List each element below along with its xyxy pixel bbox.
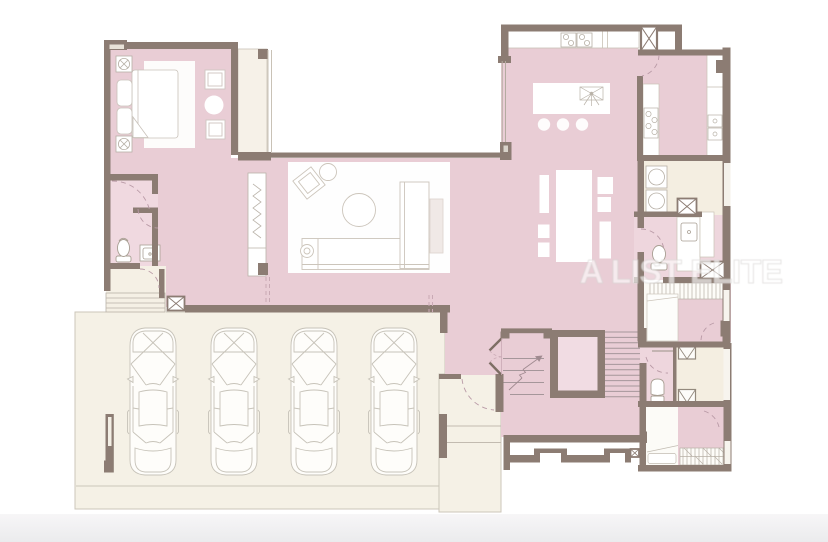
svg-text:A LIST ELITE: A LIST ELITE — [579, 254, 782, 291]
